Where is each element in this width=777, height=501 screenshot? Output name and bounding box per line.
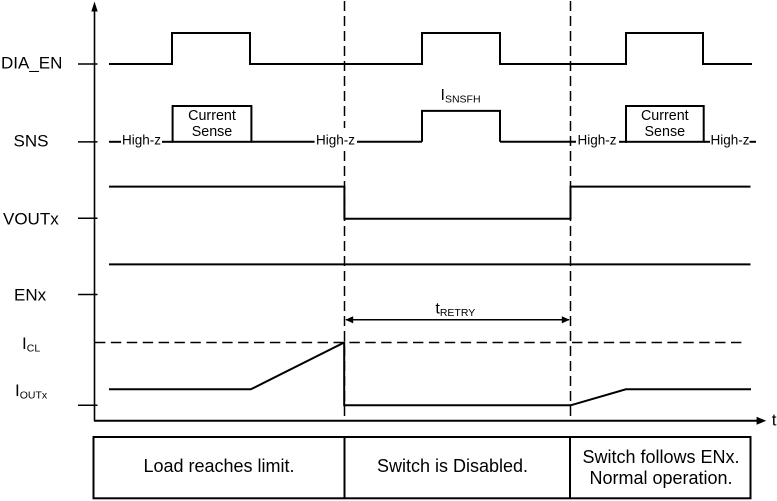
svg-text:Current: Current bbox=[641, 108, 689, 124]
svg-text:Switch is Disabled.: Switch is Disabled. bbox=[377, 456, 528, 476]
svg-text:Sense: Sense bbox=[192, 124, 233, 140]
svg-text:Sense: Sense bbox=[645, 124, 686, 140]
svg-text:High-z: High-z bbox=[316, 132, 355, 147]
svg-text:tRETRY: tRETRY bbox=[435, 301, 475, 320]
svg-text:ICL: ICL bbox=[22, 334, 40, 355]
svg-text:Switch follows ENx.: Switch follows ENx. bbox=[582, 447, 739, 467]
svg-text:Current: Current bbox=[188, 108, 236, 124]
svg-text:High-z: High-z bbox=[578, 132, 617, 147]
svg-text:DIA_EN: DIA_EN bbox=[1, 54, 62, 73]
svg-text:VOUTx: VOUTx bbox=[3, 209, 59, 228]
svg-text:ENx: ENx bbox=[14, 286, 47, 305]
svg-text:IOUTx: IOUTx bbox=[15, 381, 48, 402]
svg-text:High-z: High-z bbox=[711, 132, 750, 147]
svg-text:Load reaches limit.: Load reaches limit. bbox=[143, 456, 294, 476]
svg-text:High-z: High-z bbox=[122, 132, 161, 147]
svg-text:t: t bbox=[772, 411, 777, 430]
svg-text:SNS: SNS bbox=[14, 132, 49, 151]
svg-text:ISNSFH: ISNSFH bbox=[441, 87, 481, 106]
svg-text:Normal operation.: Normal operation. bbox=[589, 468, 732, 488]
